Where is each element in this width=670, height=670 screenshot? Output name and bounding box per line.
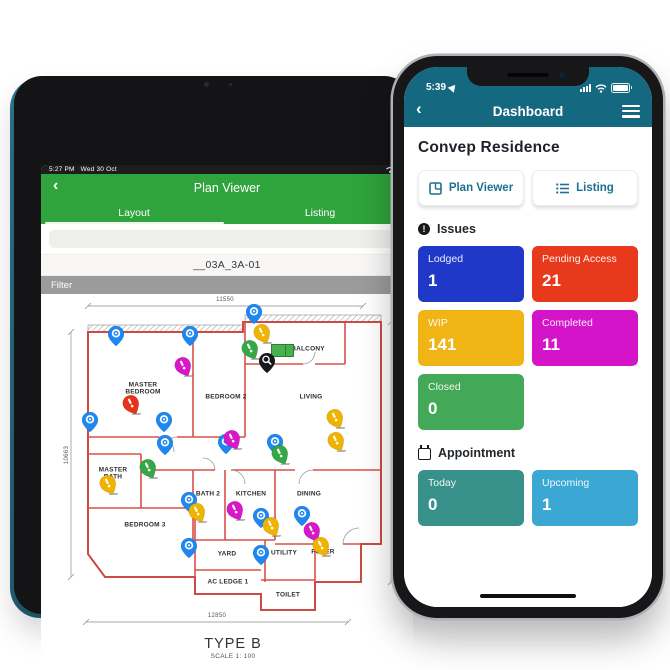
room-label-bedroom-3: BEDROOM 3 bbox=[124, 521, 165, 528]
search-input[interactable] bbox=[49, 230, 405, 248]
listing-label: Listing bbox=[576, 182, 614, 194]
calendar-icon bbox=[418, 448, 431, 460]
phone-time: 5:39 bbox=[426, 82, 446, 93]
issues-tile-grid: Lodged1Pending Access21WIP141Completed11… bbox=[418, 246, 638, 430]
tile-value: 21 bbox=[542, 271, 628, 291]
tile-label: Lodged bbox=[428, 253, 514, 265]
room-label-toilet: TOILET bbox=[276, 591, 300, 598]
phone-nav-bar: ‹ Dashboard bbox=[404, 95, 652, 127]
issues-title: Issues bbox=[437, 222, 476, 236]
map-pin-black[interactable] bbox=[259, 353, 275, 373]
map-pin-blue[interactable] bbox=[156, 412, 172, 432]
tile-value: 1 bbox=[542, 495, 628, 515]
tile-value: 141 bbox=[428, 335, 514, 355]
map-pin-blue[interactable] bbox=[182, 326, 198, 346]
issues-section-header: ! Issues bbox=[418, 222, 638, 236]
map-pin-blue[interactable] bbox=[108, 326, 124, 346]
room-label-bath-2: BATH 2 bbox=[196, 490, 220, 497]
room-label-kitchen: KITCHEN bbox=[236, 490, 266, 497]
tablet-status-bar: 5:27 PM Wed 30 Oct 66 bbox=[41, 165, 413, 174]
phone-device: 5:39 ‹ Dashboard bbox=[393, 56, 663, 618]
map-pin-blue[interactable] bbox=[246, 304, 262, 324]
dimension-top: 11550 bbox=[216, 297, 234, 303]
room-label-living: LIVING bbox=[300, 393, 323, 400]
menu-icon[interactable] bbox=[622, 105, 640, 121]
room-label-dining: DINING bbox=[297, 490, 321, 497]
tile-label: Closed bbox=[428, 381, 514, 393]
plan-title-block: TYPE B SCALE 1: 100 bbox=[204, 636, 262, 660]
tablet-nav-bar: ‹ Plan Viewer bbox=[41, 174, 413, 202]
room-label-utility: UTILITY bbox=[271, 549, 297, 556]
phone-camera bbox=[559, 72, 565, 78]
quick-buttons-row: Plan Viewer Listing bbox=[418, 170, 638, 206]
tablet-status-left: 5:27 PM Wed 30 Oct bbox=[49, 166, 117, 173]
phone-speaker bbox=[507, 73, 549, 77]
tablet-camera-dot bbox=[204, 82, 209, 87]
filter-label: Filter bbox=[51, 280, 72, 291]
list-icon bbox=[556, 183, 569, 194]
search-row bbox=[41, 224, 413, 255]
plan-icon bbox=[429, 182, 442, 195]
phone-page-title: Dashboard bbox=[404, 104, 652, 119]
tablet-date: Wed 30 Oct bbox=[81, 166, 117, 173]
tile-value: 11 bbox=[542, 335, 628, 355]
wifi-icon bbox=[595, 84, 607, 93]
listing-button[interactable]: Listing bbox=[532, 170, 638, 206]
room-label-bedroom-2: BEDROOM 2 bbox=[205, 393, 246, 400]
tile-label: Upcoming bbox=[542, 477, 628, 489]
stat-tile-closed[interactable]: Closed0 bbox=[418, 374, 524, 430]
appointment-section-header: Appointment bbox=[418, 446, 638, 460]
back-chevron-icon[interactable]: ‹ bbox=[416, 100, 422, 117]
tile-label: WIP bbox=[428, 317, 514, 329]
appointment-title: Appointment bbox=[438, 446, 515, 460]
stat-tile-pending-access[interactable]: Pending Access21 bbox=[532, 246, 638, 302]
dimension-bottom: 12850 bbox=[208, 613, 226, 619]
phone-screen: 5:39 ‹ Dashboard bbox=[404, 67, 652, 607]
room-label-yard: YARD bbox=[218, 550, 237, 557]
tile-label: Completed bbox=[542, 317, 628, 329]
plan-viewer-label: Plan Viewer bbox=[449, 182, 513, 194]
home-indicator[interactable] bbox=[480, 594, 576, 599]
phone-content: Convep Residence Plan Viewer bbox=[404, 127, 652, 607]
unit-label[interactable]: __03A_3A-01 bbox=[41, 255, 413, 276]
plan-type-label: TYPE B bbox=[204, 636, 262, 652]
phone-notch bbox=[467, 67, 589, 86]
tablet-time: 5:27 PM bbox=[49, 166, 75, 173]
map-pin-blue[interactable] bbox=[181, 538, 197, 558]
tile-label: Pending Access bbox=[542, 253, 628, 265]
plan-scale-label: SCALE 1: 100 bbox=[204, 653, 262, 660]
tablet-page-title: Plan Viewer bbox=[41, 181, 413, 195]
tile-value: 0 bbox=[428, 495, 514, 515]
map-pin-blue[interactable] bbox=[253, 545, 269, 565]
room-label-balcony: BALCONY bbox=[291, 345, 325, 352]
appointment-tile-grid: Today0Upcoming1 bbox=[418, 470, 638, 526]
plan-viewer-button[interactable]: Plan Viewer bbox=[418, 170, 524, 206]
tile-label: Today bbox=[428, 477, 514, 489]
floor-plan-area[interactable]: 11550 12850 10663 12425 TYPE B SCALE 1: … bbox=[41, 294, 413, 670]
stat-tile-today[interactable]: Today0 bbox=[418, 470, 524, 526]
signal-icon bbox=[580, 84, 591, 92]
location-arrow-icon bbox=[448, 82, 459, 93]
dimension-left: 10663 bbox=[64, 446, 70, 464]
tablet-camera-dot2 bbox=[229, 83, 232, 86]
stat-tile-lodged[interactable]: Lodged1 bbox=[418, 246, 524, 302]
back-chevron-icon[interactable]: ‹ bbox=[53, 178, 58, 194]
tab-layout[interactable]: Layout bbox=[41, 202, 227, 224]
battery-icon bbox=[611, 83, 630, 93]
tablet-tab-bar: Layout Listing bbox=[41, 202, 413, 224]
stat-tile-completed[interactable]: Completed11 bbox=[532, 310, 638, 366]
map-pin-blue[interactable] bbox=[82, 412, 98, 432]
active-tab-underline bbox=[45, 222, 224, 225]
map-pin-blue[interactable] bbox=[157, 435, 173, 455]
room-label-ac-ledge-1: AC LEDGE 1 bbox=[207, 578, 248, 585]
stat-tile-upcoming[interactable]: Upcoming1 bbox=[532, 470, 638, 526]
stat-tile-wip[interactable]: WIP141 bbox=[418, 310, 524, 366]
tab-listing[interactable]: Listing bbox=[227, 202, 413, 224]
floor-plan: 11550 12850 10663 12425 TYPE B SCALE 1: … bbox=[63, 292, 403, 670]
issues-icon: ! bbox=[418, 223, 430, 235]
project-title: Convep Residence bbox=[418, 139, 638, 157]
tablet-screen: 5:27 PM Wed 30 Oct 66 ‹ Plan Viewer L bbox=[41, 165, 413, 670]
tile-value: 0 bbox=[428, 399, 514, 419]
tablet-device: 5:27 PM Wed 30 Oct 66 ‹ Plan Viewer L bbox=[14, 76, 412, 614]
tile-value: 1 bbox=[428, 271, 514, 291]
screenshot-canvas: 5:27 PM Wed 30 Oct 66 ‹ Plan Viewer L bbox=[0, 0, 670, 670]
